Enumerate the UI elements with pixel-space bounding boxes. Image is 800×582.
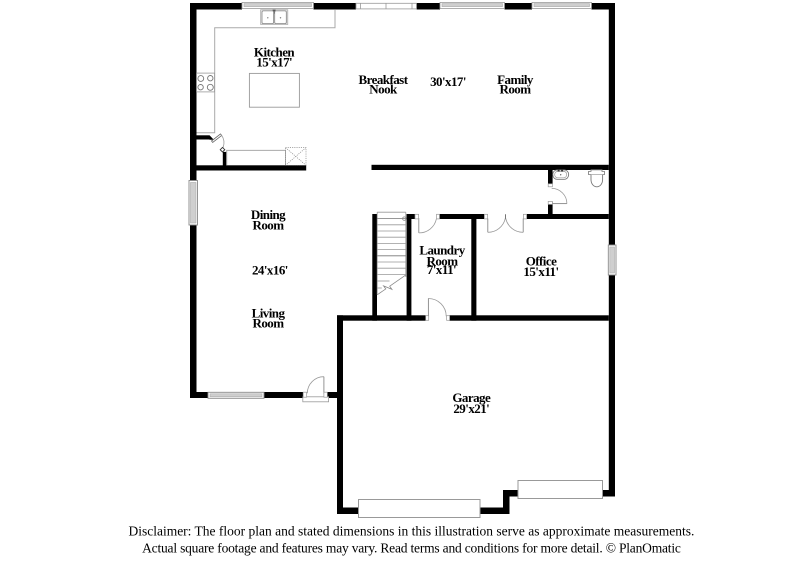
svg-text:7'x11': 7'x11' [427, 262, 456, 277]
svg-text:30'x17': 30'x17' [430, 74, 466, 89]
svg-text:Room: Room [252, 217, 284, 232]
svg-text:29'x21': 29'x21' [453, 401, 489, 416]
svg-text:Actual square footage and feat: Actual square footage and features may v… [142, 540, 681, 555]
svg-text:Disclaimer: The floor plan and: Disclaimer: The floor plan and stated di… [128, 524, 694, 539]
svg-text:15'x11': 15'x11' [523, 264, 558, 279]
svg-text:Room: Room [499, 82, 531, 97]
svg-text:24'x16': 24'x16' [252, 263, 288, 278]
svg-text:15'x17': 15'x17' [256, 55, 292, 70]
svg-text:Nook: Nook [369, 82, 398, 97]
svg-text:Room: Room [252, 315, 284, 330]
